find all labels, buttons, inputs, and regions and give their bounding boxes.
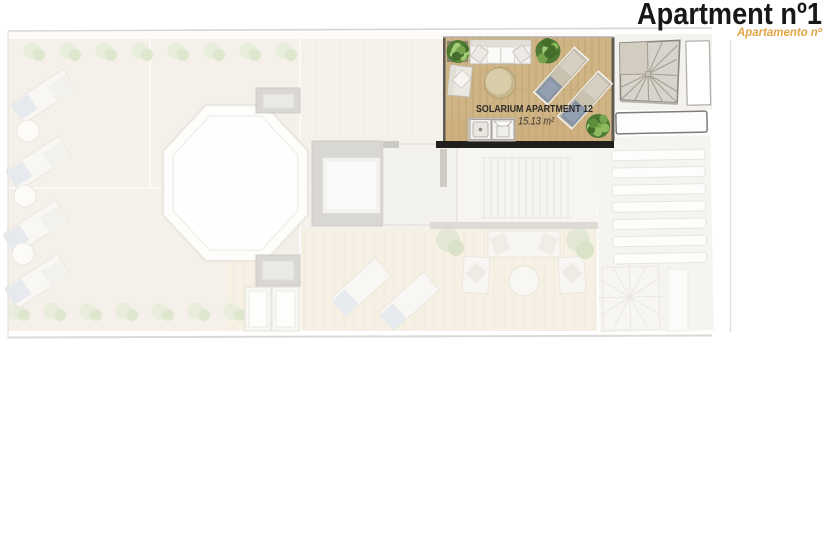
svg-text:15.13 m²: 15.13 m²	[518, 116, 554, 128]
svg-text:SOLARIUM APARTMENT 12: SOLARIUM APARTMENT 12	[476, 103, 593, 115]
svg-text:Apartamento nº: Apartamento nº	[736, 27, 823, 39]
